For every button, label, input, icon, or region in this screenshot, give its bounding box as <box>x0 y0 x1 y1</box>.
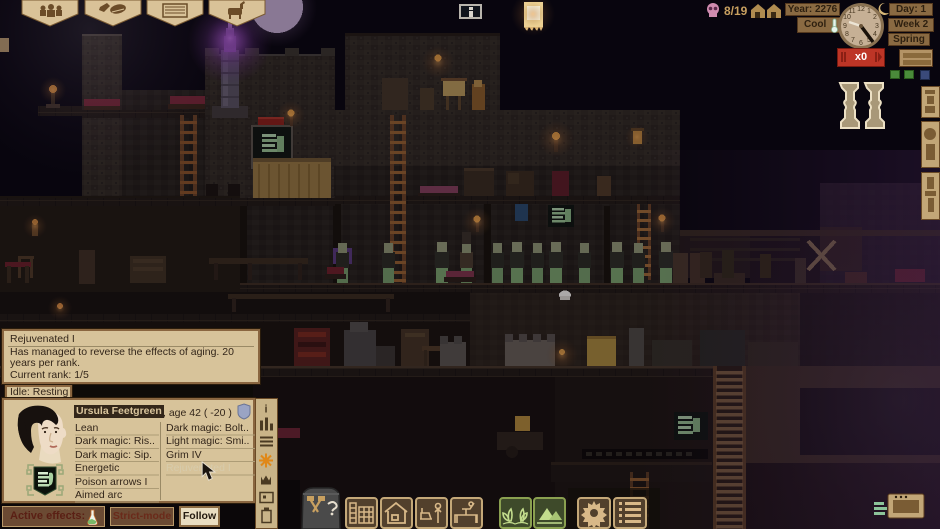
svg-text:8: 8 <box>845 31 849 38</box>
svg-text:4: 4 <box>873 31 877 38</box>
svg-text:1: 1 <box>867 8 871 15</box>
svg-text:11: 11 <box>848 8 855 15</box>
svg-text:3: 3 <box>875 23 879 30</box>
svg-text:i: i <box>264 404 267 416</box>
svg-text:6: 6 <box>859 40 863 47</box>
svg-text:8/19: 8/19 <box>724 4 748 18</box>
svg-text:7: 7 <box>851 37 855 44</box>
svg-text:2: 2 <box>873 14 877 21</box>
svg-text:10: 10 <box>843 14 851 21</box>
svg-text:9: 9 <box>843 23 847 30</box>
svg-text:12: 12 <box>857 6 865 13</box>
